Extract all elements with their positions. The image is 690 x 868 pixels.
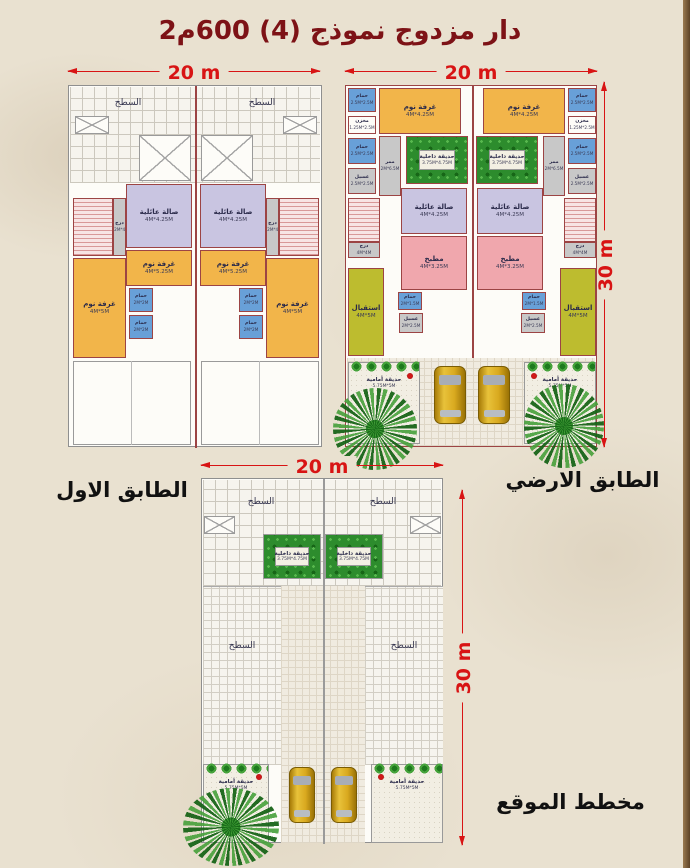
room-size: 4M*4.25M	[145, 217, 173, 224]
roof-terrace	[203, 480, 441, 586]
shaft-right	[410, 516, 441, 534]
party-wall	[195, 86, 197, 448]
room-name: استقبال	[352, 304, 381, 313]
room-bedroom: غرفة نوم 4M*4.25M	[483, 88, 565, 134]
room-name: غرفة نوم	[276, 300, 309, 309]
room-size: 2.5M*2.5M	[571, 181, 594, 186]
room-wc: حمام 2M*1.5M	[522, 292, 546, 310]
room-size: 2M*2M	[134, 300, 149, 305]
room-size: 2M*2.5M	[402, 323, 421, 328]
room-size: 2.5M*2.5M	[351, 151, 374, 156]
car-icon	[289, 767, 315, 823]
room-reception: استقبال 4M*5M	[348, 268, 384, 356]
dimension-width-ground-floor: 20 m	[345, 71, 597, 72]
room-bedroom: غرفة نوم 4M*5M	[73, 258, 126, 358]
tree-icon	[183, 788, 279, 866]
roof-label: السطح	[373, 641, 435, 651]
room-size: 4M*4.25M	[510, 112, 538, 119]
party-wall	[323, 479, 325, 844]
dimension-height-label: 30 m	[595, 230, 617, 299]
room-size: 4M*4.25M	[420, 212, 448, 219]
room-wc: حمام 2M*1.5M	[398, 292, 422, 310]
room-name: استقبال	[564, 304, 593, 313]
shrub-row	[525, 359, 595, 374]
room-size: 1.25M*2.5M	[569, 125, 594, 130]
room-stairs: درج 4M*4M	[348, 242, 380, 258]
first-floor-plan: السطح السطح صالة عائلية 4M*4.25M صالة عا…	[68, 85, 322, 447]
room-bedroom: غرفة نوم 4M*5M	[266, 258, 319, 358]
lightwell-left	[139, 135, 191, 181]
room-size: 2M*6.5M	[545, 166, 564, 171]
room-bathroom: حمام 2.5M*2.5M	[348, 88, 376, 112]
dimension-height-site: 30 m	[462, 490, 463, 845]
room-name: مطبخ	[424, 255, 443, 264]
room-bathroom: حمام 2M*2M	[129, 288, 153, 312]
staircase-left	[348, 198, 380, 242]
room-size: 4M*4M	[573, 250, 588, 255]
room-size: 4M*3.25M	[496, 264, 524, 271]
room-family-hall: صالة عائلية 4M*4.25M	[200, 184, 266, 248]
room-size: 4M*5.25M	[145, 269, 173, 276]
room-size: 5.75M*5M	[372, 786, 442, 791]
room-store: مخزن 1.25M*2.5M	[568, 116, 596, 134]
floor-plan-poster: دار مزدوج نموذج (4) 600م2 20 m السطح الس…	[0, 0, 690, 868]
room-bathroom: حمام 2.5M*2.5M	[568, 138, 596, 164]
room-size: 3.75M*4.75M	[492, 161, 522, 166]
room-size: 4M*5M	[283, 309, 302, 316]
room-size: 4M*5M	[90, 309, 109, 316]
front-garden-label: حديقة أمامية 5.75M*5M	[349, 377, 419, 389]
inner-garden: حديقة داخلية 3.75M*4.75M	[406, 136, 468, 184]
room-corridor: ممر 2M*6.5M	[543, 136, 565, 196]
paper-edge	[683, 0, 690, 868]
roof-label: السطح	[97, 98, 159, 108]
inner-garden: حديقة داخلية 3.75M*4.75M	[263, 534, 321, 579]
room-name: غرفة نوم	[404, 103, 437, 112]
dimension-width-label: 20 m	[437, 62, 506, 84]
room-wash: غسيل 2M*2.5M	[521, 313, 545, 333]
roof-label: السطح	[211, 641, 273, 651]
room-size: 1.2M*4M	[113, 227, 126, 232]
room-size: 1.2M*4M	[266, 227, 279, 232]
room-bedroom: غرفة نوم 4M*5.25M	[126, 250, 192, 286]
room-size: 3.75M*4.75M	[277, 557, 307, 562]
shaft-left	[75, 116, 109, 134]
room-bathroom: حمام 2.5M*2.5M	[348, 138, 376, 164]
car-icon	[434, 366, 466, 424]
room-name: صالة عائلية	[214, 208, 253, 217]
room-size: 2M*1.5M	[525, 301, 544, 306]
room-bathroom: حمام 2M*2M	[129, 315, 153, 339]
room-name: حديقة أمامية	[349, 377, 419, 384]
dimension-height-label: 30 m	[453, 633, 475, 702]
room-bathroom: حمام 2.5M*2.5M	[568, 88, 596, 112]
room-size: 2M*2M	[244, 327, 259, 332]
page-title: دار مزدوج نموذج (4) 600م2	[0, 16, 680, 46]
lower-roof-left	[203, 586, 281, 765]
lower-roof-right	[365, 586, 443, 765]
room-size: 2M*1.5M	[401, 301, 420, 306]
room-stairs: درج 1.2M*4M	[266, 198, 279, 256]
dimension-width-label: 20 m	[288, 456, 357, 478]
tree-icon	[524, 384, 604, 468]
room-name: حديقة داخلية	[420, 154, 455, 161]
room-laundry: غسيل 2.5M*2.5M	[568, 168, 596, 194]
open-terrace	[201, 361, 319, 445]
room-size: 4M*3.25M	[420, 264, 448, 271]
room-kitchen: مطبخ 4M*3.25M	[401, 236, 467, 290]
room-size: 2M*6.5M	[381, 166, 400, 171]
room-bedroom: غرفة نوم 4M*4.25M	[379, 88, 461, 134]
shaft-right	[283, 116, 317, 134]
roof-label: السطح	[352, 497, 414, 507]
room-size: 4M*5M	[568, 313, 587, 320]
staircase-left	[73, 198, 113, 256]
room-size: 2M*2M	[134, 327, 149, 332]
staircase-right	[564, 198, 596, 242]
first-floor-caption: الطابق الاول	[52, 478, 192, 502]
shrub-row	[349, 359, 419, 374]
room-store: مخزن 1.25M*2.5M	[348, 116, 376, 134]
room-laundry: غسيل 2.5M*2.5M	[348, 168, 376, 194]
room-size: 4M*4.25M	[496, 212, 524, 219]
room-bathroom: حمام 2M*2M	[239, 315, 263, 339]
room-stairs: درج 1.2M*4M	[113, 198, 126, 256]
room-bedroom: غرفة نوم 4M*5.25M	[200, 250, 266, 286]
dimension-width-label: 20 m	[160, 62, 229, 84]
ground-floor-caption: الطابق الارضي	[495, 468, 670, 492]
room-name: غرفة نوم	[143, 260, 176, 269]
room-size: 1.25M*2.5M	[349, 125, 374, 130]
lightwell-right	[201, 135, 253, 181]
dimension-height-ground-floor: 30 m	[604, 82, 605, 447]
dimension-width-site: 20 m	[201, 465, 443, 466]
car-icon	[331, 767, 357, 823]
room-name: غرفة نوم	[217, 260, 250, 269]
terrace-divider	[131, 361, 132, 445]
front-garden-label: حديقة أمامية 5.75M*5M	[372, 779, 442, 791]
roof-label: السطح	[230, 497, 292, 507]
room-wash: غسيل 2M*2.5M	[399, 313, 423, 333]
room-stairs: درج 4M*4M	[564, 242, 596, 258]
room-family-hall: صالة عائلية 4M*4.25M	[401, 188, 467, 234]
room-bathroom: حمام 2M*2M	[239, 288, 263, 312]
room-size: 4M*5M	[356, 313, 375, 320]
room-name: حديقة أمامية	[525, 377, 595, 384]
room-kitchen: مطبخ 4M*3.25M	[477, 236, 543, 290]
room-size: 2.5M*2.5M	[351, 181, 374, 186]
room-size: 4M*5.25M	[219, 269, 247, 276]
terrace-divider	[259, 361, 260, 445]
room-size: 4M*4.25M	[406, 112, 434, 119]
inner-garden-label: حديقة داخلية 3.75M*4.75M	[419, 150, 455, 170]
party-wall	[472, 86, 474, 358]
room-reception: استقبال 4M*5M	[560, 268, 596, 356]
room-family-hall: صالة عائلية 4M*4.25M	[477, 188, 543, 234]
front-garden: حديقة أمامية 5.75M*5M	[371, 764, 443, 843]
open-terrace	[73, 361, 191, 445]
room-size: 3.75M*4.75M	[339, 557, 369, 562]
room-size: 3.75M*4.75M	[422, 161, 452, 166]
room-size: 2M*2M	[244, 300, 259, 305]
site-plan-caption: مخطط الموقع	[478, 790, 663, 814]
staircase-right	[279, 198, 319, 256]
roof-label: السطح	[231, 98, 293, 108]
room-name: صالة عائلية	[491, 203, 530, 212]
inner-garden-label: حديقة داخلية 3.75M*4.75M	[337, 547, 371, 566]
room-name: حديقة داخلية	[490, 154, 525, 161]
car-icon	[478, 366, 510, 424]
room-corridor: ممر 2M*6.5M	[379, 136, 401, 196]
inner-garden-label: حديقة داخلية 3.75M*4.75M	[489, 150, 525, 170]
inner-garden: حديقة داخلية 3.75M*4.75M	[325, 534, 383, 579]
room-name: غرفة نوم	[83, 300, 116, 309]
inner-garden: حديقة داخلية 3.75M*4.75M	[476, 136, 538, 184]
shaft-left	[204, 516, 235, 534]
room-size: 2M*2.5M	[524, 323, 543, 328]
room-size: 4M*4.25M	[219, 217, 247, 224]
room-size: 2.5M*2.5M	[571, 100, 594, 105]
room-name: حديقة أمامية	[204, 779, 268, 786]
room-name: صالة عائلية	[415, 203, 454, 212]
room-name: صالة عائلية	[140, 208, 179, 217]
dimension-width-first-floor: 20 m	[68, 71, 320, 72]
room-name: حديقة أمامية	[372, 779, 442, 786]
room-size: 2.5M*2.5M	[351, 100, 374, 105]
room-name: مطبخ	[500, 255, 519, 264]
room-size: 2.5M*2.5M	[571, 151, 594, 156]
inner-garden-label: حديقة داخلية 3.75M*4.75M	[275, 547, 309, 566]
room-size: 4M*4M	[357, 250, 372, 255]
room-family-hall: صالة عائلية 4M*4.25M	[126, 184, 192, 248]
room-name: غرفة نوم	[508, 103, 541, 112]
